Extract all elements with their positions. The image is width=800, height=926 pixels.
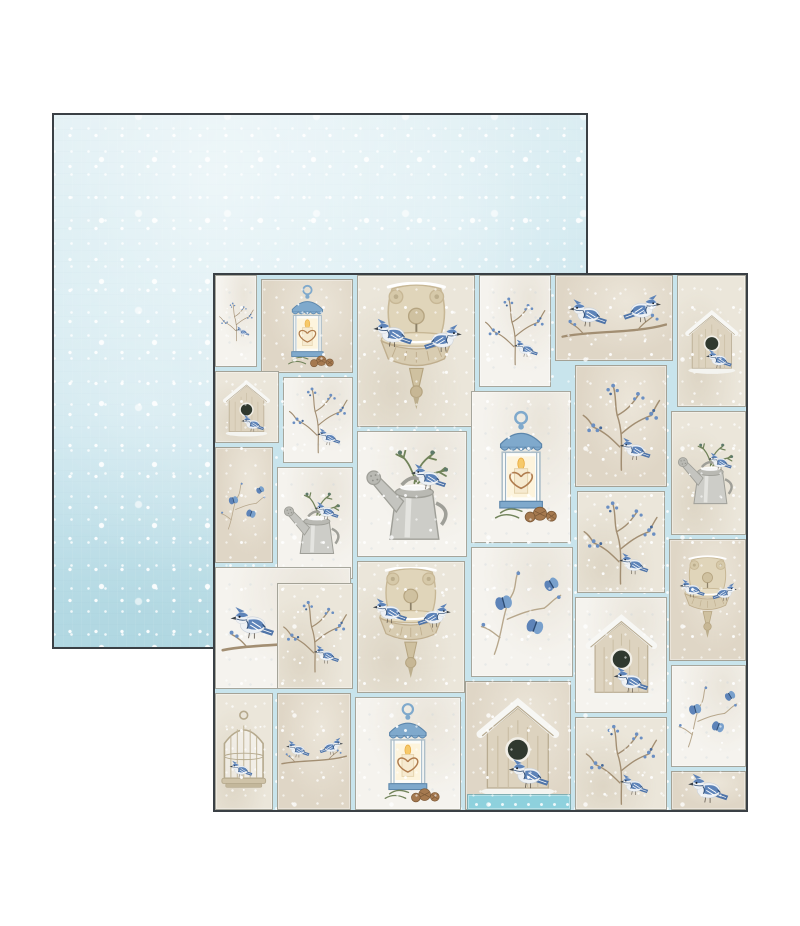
- card-branch: [577, 491, 665, 593]
- bird-icon: [675, 773, 742, 807]
- branch-icon: [483, 280, 547, 381]
- branch-icon: [218, 280, 255, 363]
- card-wateringcan: [671, 411, 746, 535]
- card-branch: [215, 275, 257, 367]
- fountain-icon: [362, 567, 460, 687]
- branch-icon: [581, 496, 660, 588]
- card-wateringcan: [357, 431, 467, 557]
- sprig-icon: [218, 453, 270, 558]
- birdhouse-icon: [470, 687, 566, 804]
- card-birdhouse: [575, 597, 667, 713]
- birdhouse-icon: [218, 375, 275, 439]
- sprig-icon: [476, 553, 568, 671]
- branch-icon: [281, 588, 349, 684]
- card-birdpair: [277, 693, 351, 810]
- sprig-icon: [675, 670, 742, 762]
- card-branch: [575, 365, 667, 487]
- lantern-icon: [476, 398, 566, 536]
- product-photo-stage: [0, 0, 800, 926]
- card-birdhouse: [677, 275, 746, 407]
- card-birdhouse: [215, 371, 279, 443]
- card-branch: [575, 717, 667, 810]
- lantern-icon: [360, 702, 456, 804]
- wateringcan-icon: [281, 472, 349, 573]
- card-birdpair: [555, 275, 673, 361]
- birdhouse-icon: [580, 603, 663, 708]
- wateringcan-icon: [362, 437, 461, 551]
- card-branch: [283, 377, 353, 463]
- card-teal-patch: [467, 794, 571, 810]
- card-bird: [671, 771, 746, 810]
- card-fountain: [669, 539, 746, 661]
- lantern-icon: [266, 284, 349, 369]
- birdcage-icon: [218, 699, 270, 805]
- branch-icon: [287, 381, 350, 458]
- fountain-icon: [363, 282, 470, 420]
- card-sprig: [215, 447, 273, 563]
- fountain-icon: [673, 545, 742, 655]
- card-fountain: [357, 275, 475, 427]
- card-wateringcan: [277, 467, 353, 579]
- card-sprig: [671, 665, 746, 767]
- card-branch: [277, 583, 353, 689]
- birdhouse-icon: [681, 281, 743, 401]
- birdpair-icon: [561, 279, 668, 356]
- wateringcan-icon: [675, 417, 742, 529]
- card-lantern: [261, 279, 353, 373]
- branch-icon: [580, 371, 663, 481]
- card-lantern: [355, 697, 461, 810]
- card-birdhouse: [465, 681, 571, 810]
- birdpair-icon: [281, 699, 347, 805]
- card-lantern: [471, 391, 571, 543]
- card-birdcage: [215, 693, 273, 810]
- front-sheet-bird-collage: [213, 273, 748, 812]
- branch-icon: [580, 722, 663, 806]
- card-sprig: [471, 547, 573, 677]
- card-branch: [479, 275, 551, 387]
- card-fountain: [357, 561, 465, 693]
